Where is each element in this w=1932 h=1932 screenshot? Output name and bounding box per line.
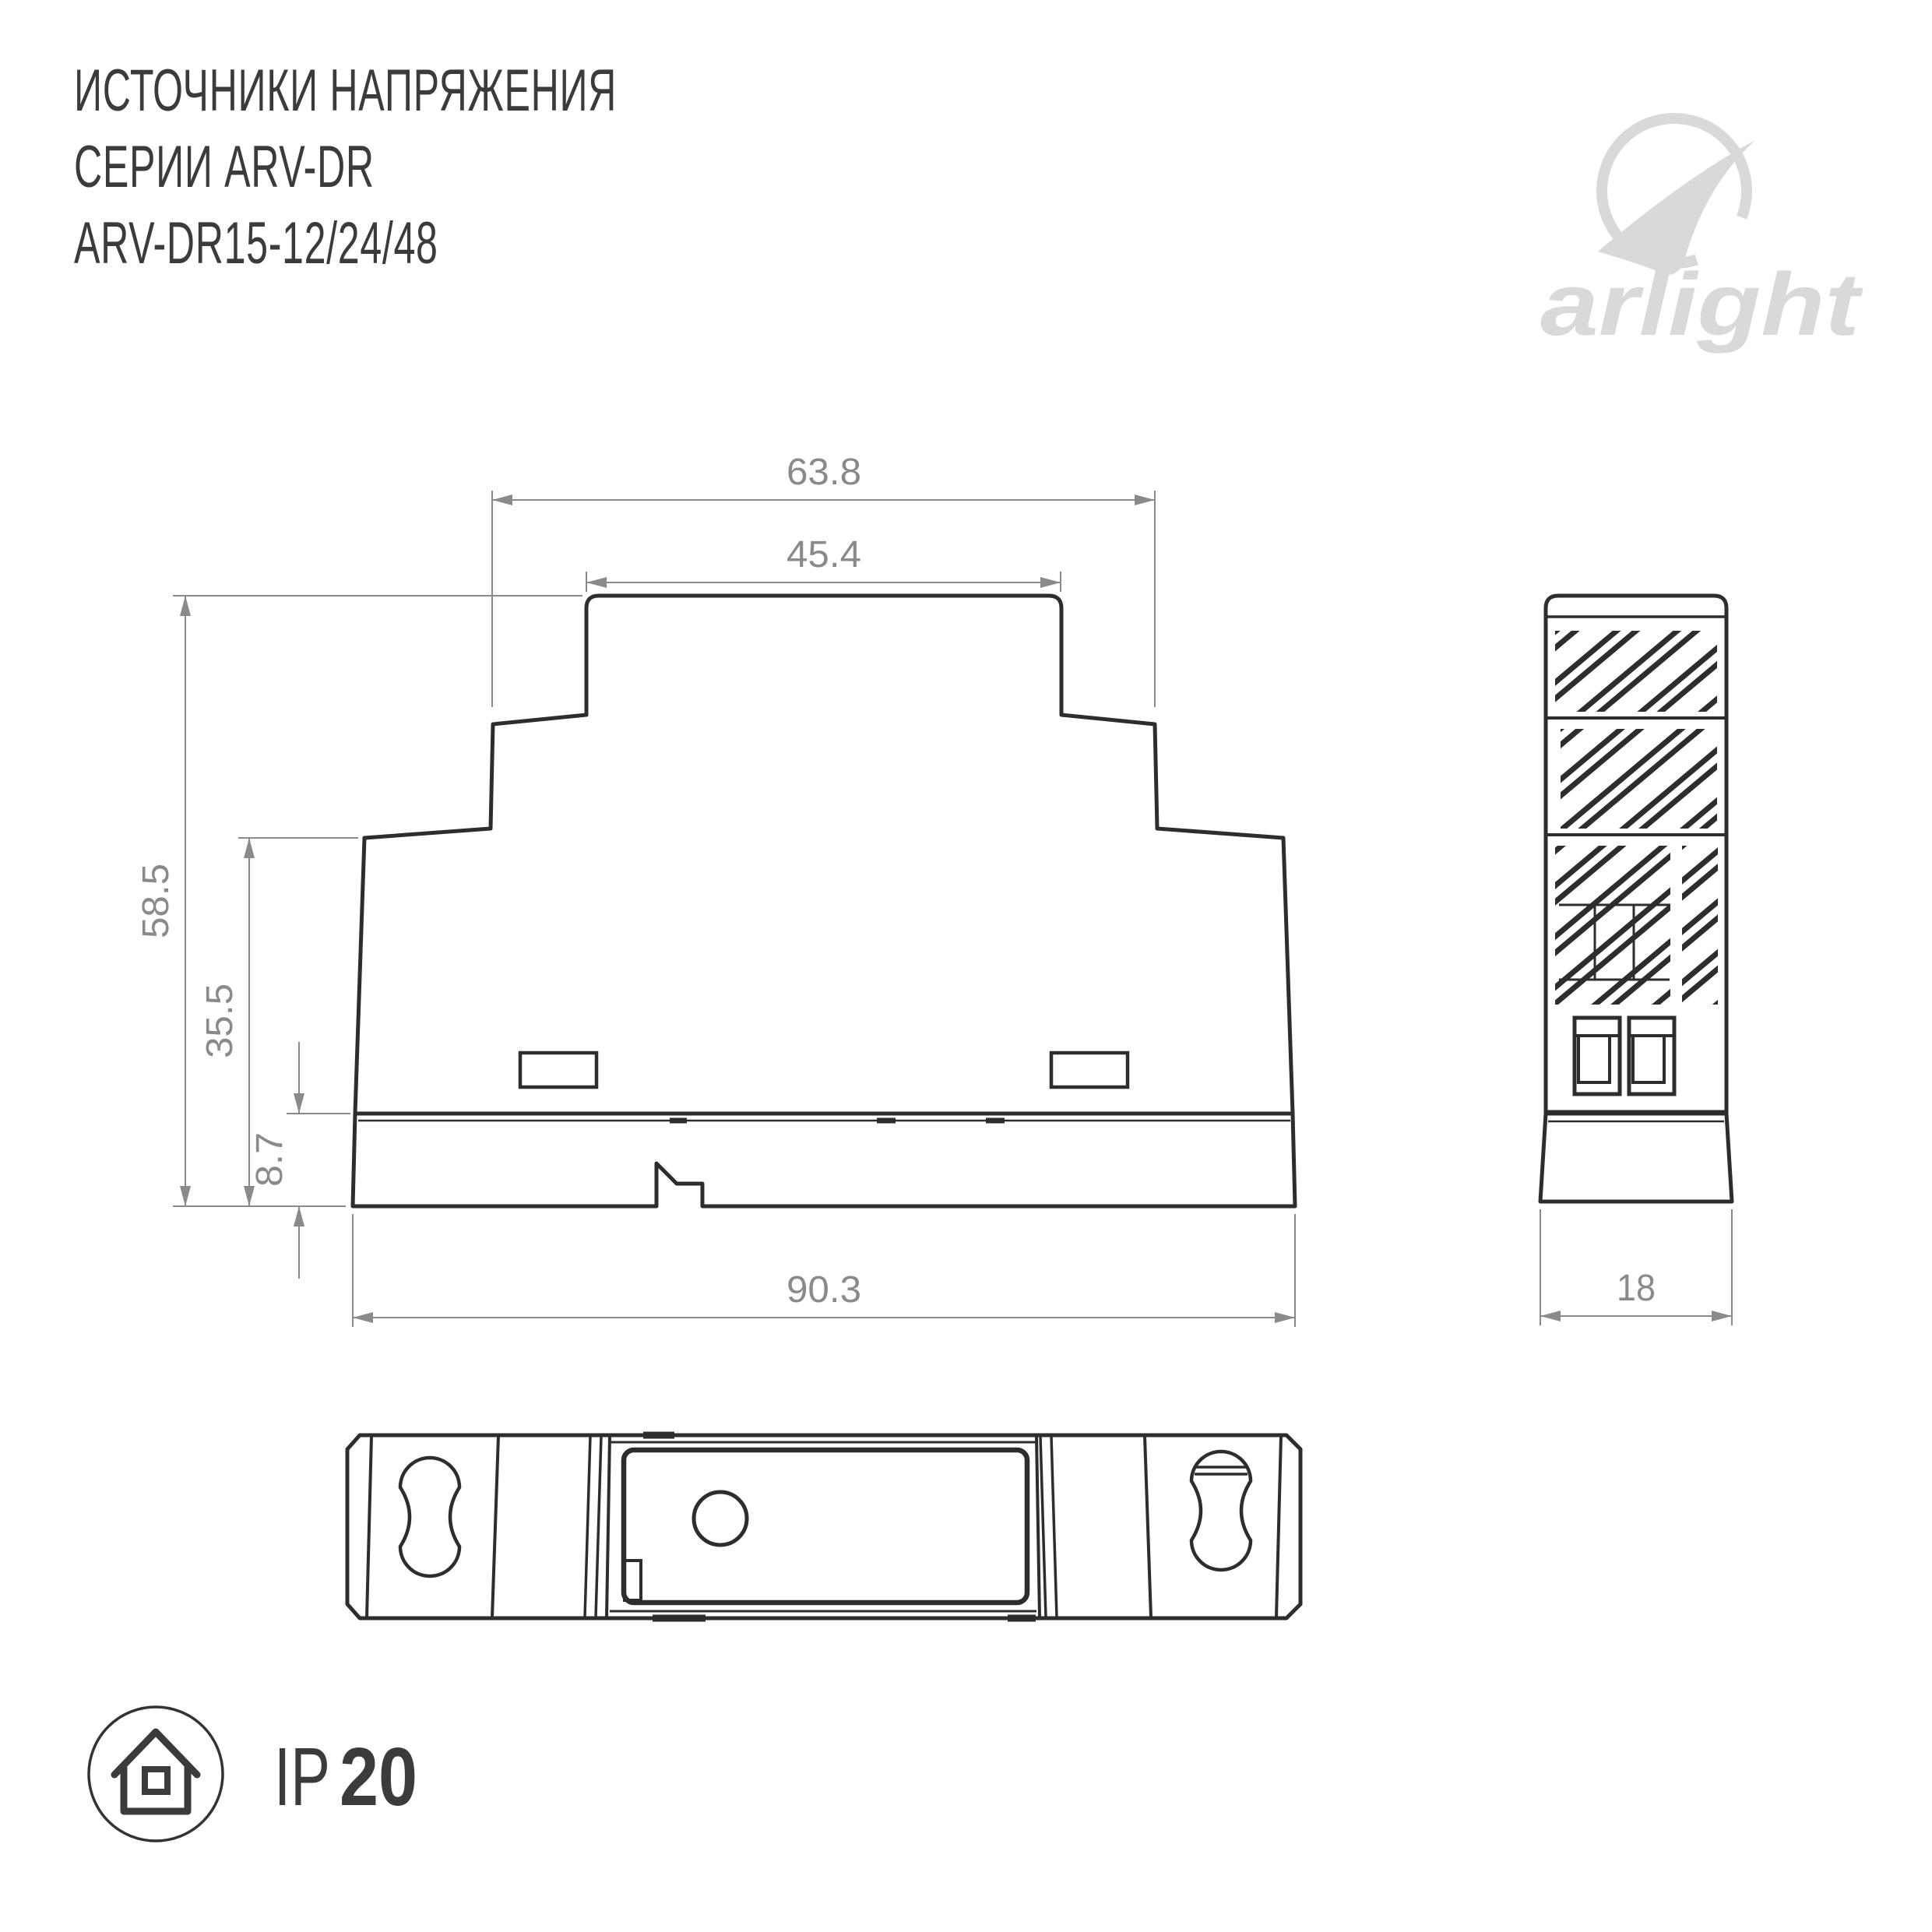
dimension-8-7: 8.7 (249, 1042, 350, 1279)
bottom-view-drawing (347, 1435, 1300, 1618)
front-vent-slot-right (1051, 1053, 1128, 1087)
dim-label-side-width: 18 (1617, 1268, 1656, 1309)
ip-rating-badge: IP 20 (62, 1690, 498, 1892)
dim-label-body-height: 35.5 (199, 984, 241, 1058)
side-terminal-left (1575, 1018, 1620, 1094)
dim-label-total-width: 90.3 (787, 1269, 861, 1311)
bottom-label-recess (624, 1450, 1027, 1603)
dimension-90-3: 90.3 (353, 1214, 1295, 1327)
bottom-seam (596, 1436, 601, 1617)
ip-badge-prefix: IP (274, 1731, 330, 1823)
ip-badge-rating: 20 (340, 1731, 417, 1823)
page: ИСТОЧНИКИ НАПРЯЖЕНИЯ СЕРИИ ARV-DR ARV-DR… (0, 0, 1932, 1932)
side-vent-section-2 (1561, 729, 1717, 829)
technical-drawing: 63.8 45.4 58.5 35.5 (0, 0, 1932, 1932)
bottom-seam (492, 1436, 498, 1617)
side-view-drawing: 18 (1540, 596, 1732, 1325)
dimension-18: 18 (1540, 1209, 1732, 1325)
front-view-drawing: 63.8 45.4 58.5 35.5 (135, 452, 1295, 1327)
bottom-mount-slot-left (400, 1458, 459, 1576)
bottom-seam (1040, 1436, 1046, 1617)
side-vent-section-3-right (1682, 846, 1718, 1005)
bottom-center-edge-right (1036, 1436, 1040, 1617)
bottom-recess-tab (625, 1561, 641, 1600)
front-vent-slot-left (520, 1053, 596, 1087)
dim-label-step-width: 63.8 (787, 452, 861, 493)
bottom-endcap-left (367, 1436, 371, 1617)
side-vent-section-1 (1555, 631, 1717, 712)
side-terminal-right (1629, 1018, 1674, 1094)
bottom-view-outline (347, 1435, 1300, 1618)
dimension-63-8: 63.8 (492, 452, 1155, 707)
bottom-endcap-right (1276, 1436, 1281, 1617)
bottom-screw-hole (694, 1492, 747, 1545)
dim-label-base-height: 8.7 (249, 1132, 290, 1187)
house-icon (89, 1707, 223, 1841)
dim-label-total-height: 58.5 (135, 864, 177, 938)
dim-label-top-width: 45.4 (787, 534, 861, 575)
bottom-seam (1145, 1436, 1151, 1617)
bottom-center-edge-left (607, 1436, 610, 1617)
bottom-seam (1051, 1436, 1057, 1617)
dimension-45-4: 45.4 (586, 534, 1061, 592)
bottom-mount-slot-right (1191, 1452, 1251, 1570)
side-base (1540, 1114, 1732, 1202)
bottom-seam (585, 1436, 590, 1617)
